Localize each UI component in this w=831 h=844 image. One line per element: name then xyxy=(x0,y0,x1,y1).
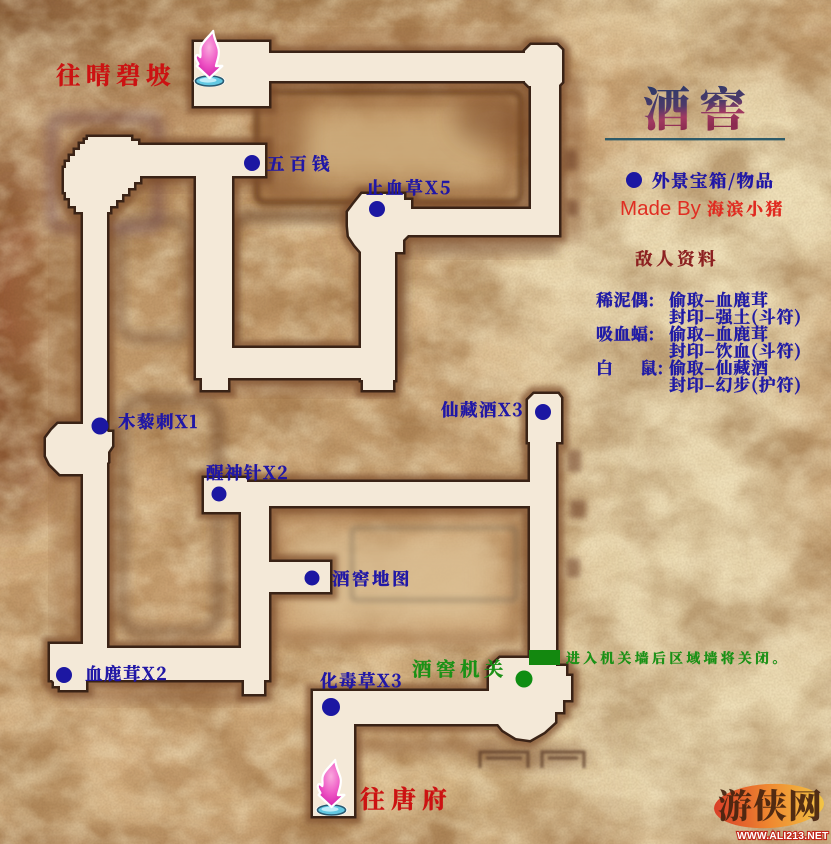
svg-text:Made By: Made By xyxy=(620,197,702,220)
svg-text:WWW.ALI213.NET: WWW.ALI213.NET xyxy=(737,831,829,842)
